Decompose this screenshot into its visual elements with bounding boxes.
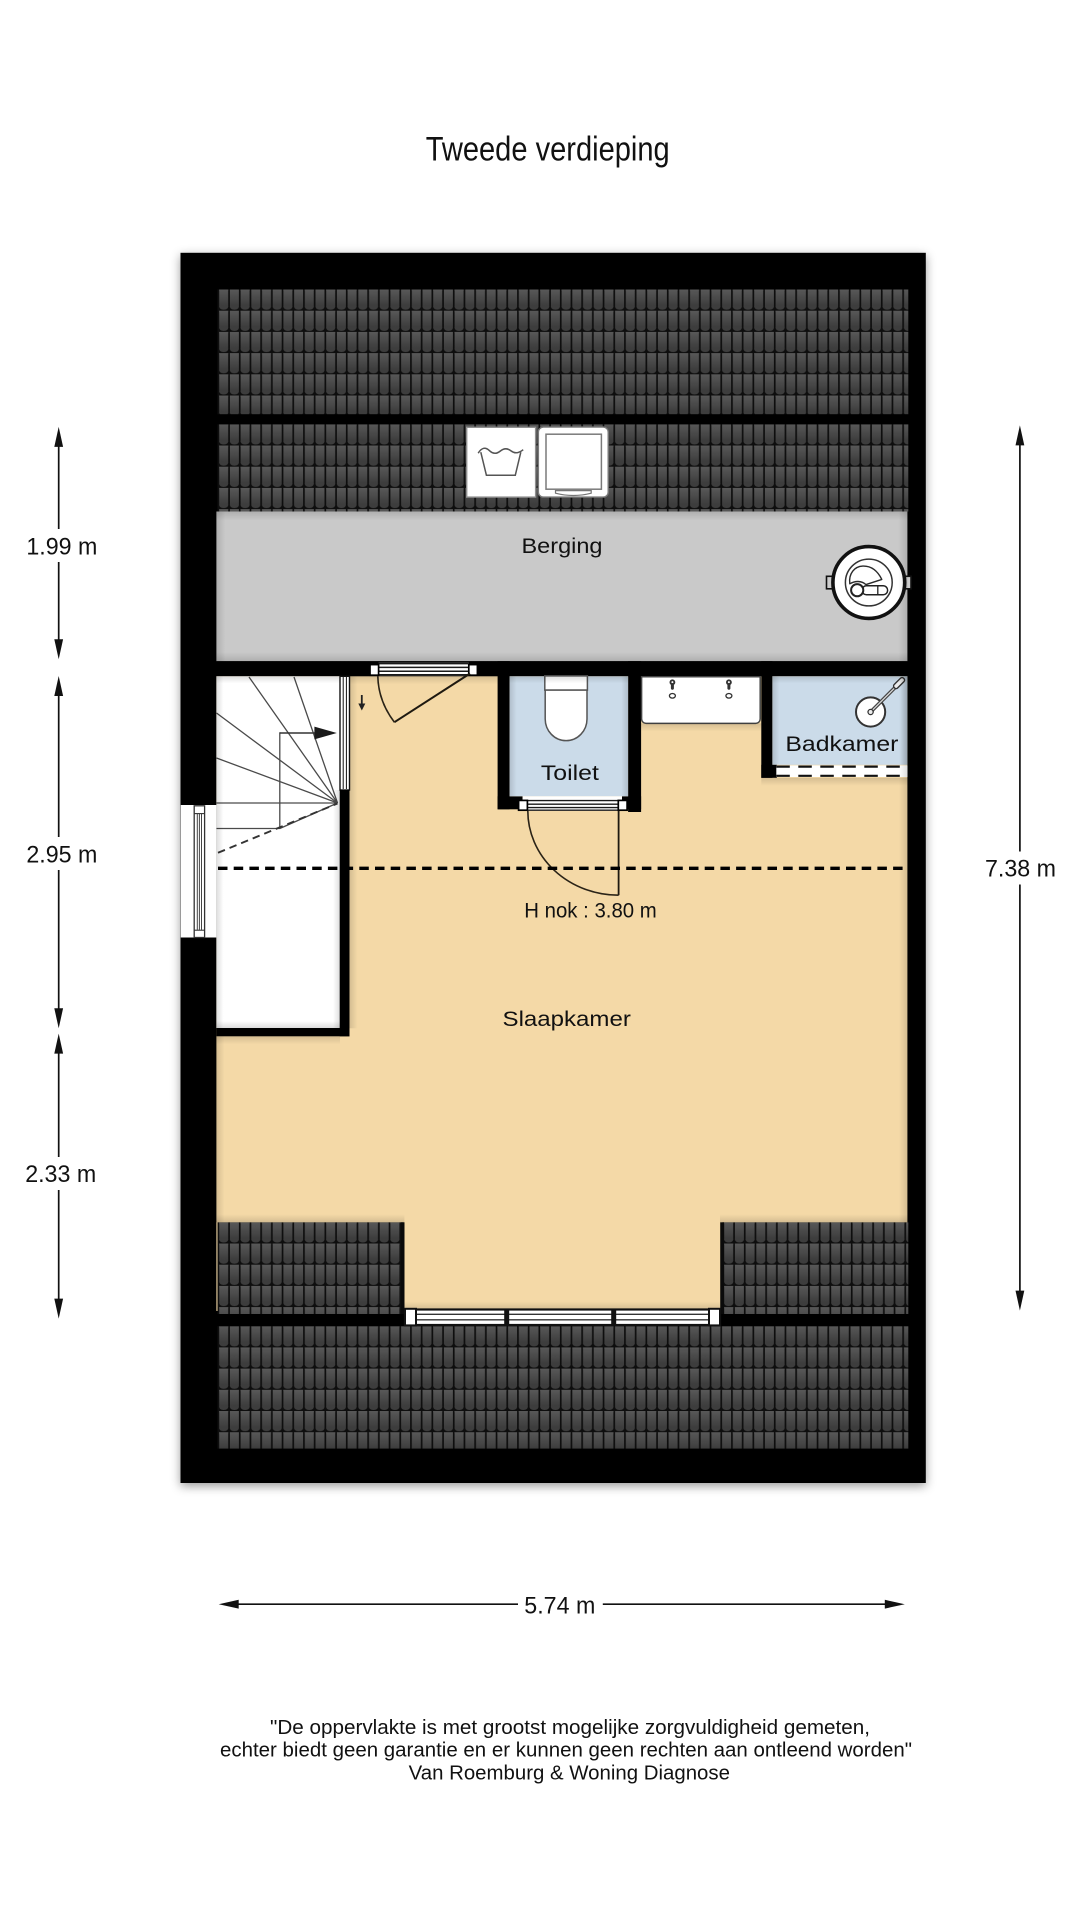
- svg-text:"De oppervlakte is met grootst: "De oppervlakte is met grootst mogelijke…: [270, 1717, 870, 1739]
- svg-text:5.74 m: 5.74 m: [524, 1592, 595, 1619]
- svg-text:7.38 m: 7.38 m: [985, 856, 1056, 883]
- svg-text:H nok : 3.80 m: H nok : 3.80 m: [524, 900, 657, 923]
- svg-text:2.33 m: 2.33 m: [25, 1161, 96, 1188]
- svg-text:echter biedt geen garantie en: echter biedt geen garantie en er kunnen …: [220, 1740, 912, 1762]
- svg-text:Toilet: Toilet: [541, 762, 599, 785]
- svg-text:Tweede verdieping: Tweede verdieping: [426, 130, 670, 168]
- svg-text:Van Roemburg & Woning Diagnose: Van Roemburg & Woning Diagnose: [409, 1762, 730, 1784]
- svg-text:2.95 m: 2.95 m: [26, 842, 97, 869]
- svg-text:Badkamer: Badkamer: [785, 733, 898, 756]
- svg-text:Slaapkamer: Slaapkamer: [503, 1008, 631, 1031]
- svg-text:Berging: Berging: [522, 535, 603, 558]
- svg-text:1.99 m: 1.99 m: [26, 534, 97, 561]
